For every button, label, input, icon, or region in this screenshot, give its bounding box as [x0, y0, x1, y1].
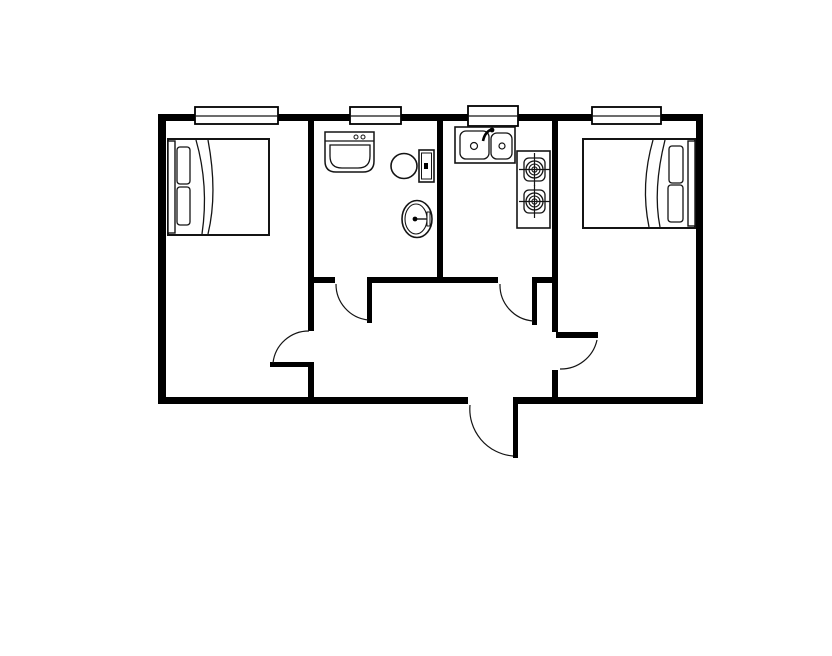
- floorplan-container: [0, 0, 832, 656]
- wall-right: [696, 114, 703, 404]
- kitchen-sink-faucet-head: [490, 128, 495, 133]
- wall-left: [158, 114, 166, 404]
- bathroom-vanity-faucet-handle-right: [361, 135, 365, 139]
- wall-bedroom-left-east-lower: [308, 363, 314, 397]
- door-arc-bathroom: [336, 284, 368, 320]
- toilet-flush-button: [424, 163, 428, 169]
- wall-bedroom-left-east-upper: [308, 121, 314, 331]
- door-arc-entry: [470, 405, 513, 456]
- door-leaf-bedroom-right: [556, 332, 598, 338]
- wall-kitchen-bedroom-right-lower: [552, 370, 558, 397]
- door-leaf-bedroom-left: [270, 362, 314, 367]
- wall-bottom-west: [158, 397, 468, 404]
- door-arc-kitchen: [500, 284, 533, 321]
- door-arc-bedroom-right: [560, 340, 597, 369]
- bed-right-headboard: [688, 141, 695, 226]
- wall-hall-north-mid: [367, 277, 498, 283]
- door-leaf-entry: [513, 404, 518, 458]
- bed-left-headboard: [168, 141, 175, 233]
- wall-kitchen-bedroom-right-upper: [552, 121, 558, 332]
- wall-bathroom-kitchen-partition: [437, 121, 443, 283]
- wall-hall-north-west: [308, 277, 335, 283]
- wall-bottom-east: [513, 397, 703, 404]
- bathroom-vanity-faucet-handle-left: [354, 135, 358, 139]
- bathroom-basin-faucet-bar: [427, 212, 430, 226]
- door-leaf-kitchen: [532, 277, 537, 325]
- toilet-bowl: [391, 154, 417, 179]
- page: { "canvas": { "width": 832, "height": 65…: [0, 0, 832, 656]
- floorplan-svg: [0, 0, 832, 656]
- door-leaf-bathroom: [367, 277, 372, 323]
- kitchen-sink-drain-right: [499, 143, 505, 149]
- kitchen-sink-drain-left: [471, 143, 478, 150]
- door-arc-bedroom-left: [273, 331, 309, 363]
- bathroom-basin-drain-dot: [413, 217, 418, 222]
